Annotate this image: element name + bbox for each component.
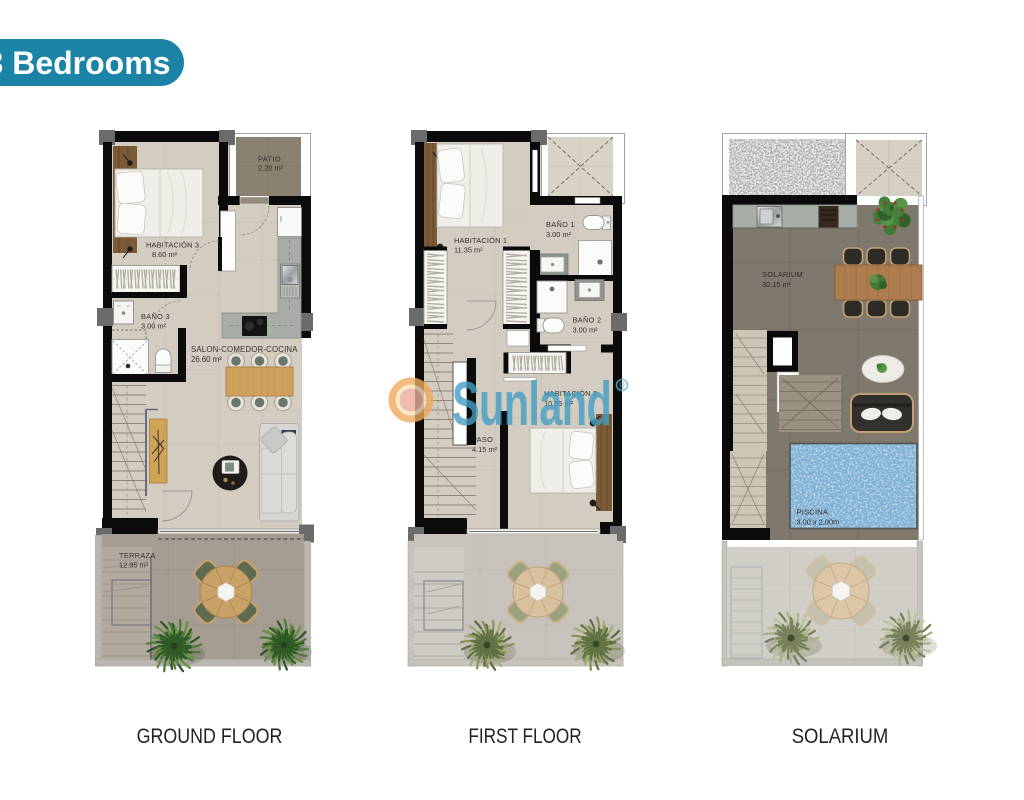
svg-text:3.00 m²: 3.00 m² <box>546 230 572 239</box>
svg-text:BAÑO 1: BAÑO 1 <box>546 220 575 229</box>
svg-text:TERRAZA: TERRAZA <box>119 551 156 560</box>
svg-text:3 Bedrooms: 3 Bedrooms <box>0 45 170 81</box>
svg-text:SOLARIUM: SOLARIUM <box>762 270 803 279</box>
svg-text:11.35 m²: 11.35 m² <box>454 246 483 255</box>
svg-text:HABITACIÓN 1: HABITACIÓN 1 <box>454 236 507 245</box>
svg-text:HABITACIÓN 3: HABITACIÓN 3 <box>146 241 199 250</box>
svg-text:PISCINA: PISCINA <box>797 508 829 517</box>
svg-text:26.60 m²: 26.60 m² <box>191 355 222 364</box>
svg-text:R: R <box>619 382 625 391</box>
svg-text:2.20 m²: 2.20 m² <box>258 164 284 173</box>
svg-text:BAÑO 3: BAÑO 3 <box>141 312 170 321</box>
svg-text:4.15 m²: 4.15 m² <box>472 445 498 454</box>
svg-text:PATIO: PATIO <box>258 155 281 164</box>
svg-text:3.00 x 2.00m: 3.00 x 2.00m <box>797 518 840 527</box>
svg-text:8.60 m²: 8.60 m² <box>152 250 178 259</box>
svg-text:3.00 m²: 3.00 m² <box>573 326 599 335</box>
svg-text:BAÑO 2: BAÑO 2 <box>573 316 602 325</box>
svg-text:12.95 m²: 12.95 m² <box>119 561 149 570</box>
svg-text:SOLARIUM: SOLARIUM <box>792 725 889 749</box>
svg-text:Sunland: Sunland <box>452 370 611 439</box>
svg-text:GROUND FLOOR: GROUND FLOOR <box>137 725 283 749</box>
svg-text:30.15 m²: 30.15 m² <box>762 280 792 289</box>
svg-text:FIRST FLOOR: FIRST FLOOR <box>468 724 581 748</box>
